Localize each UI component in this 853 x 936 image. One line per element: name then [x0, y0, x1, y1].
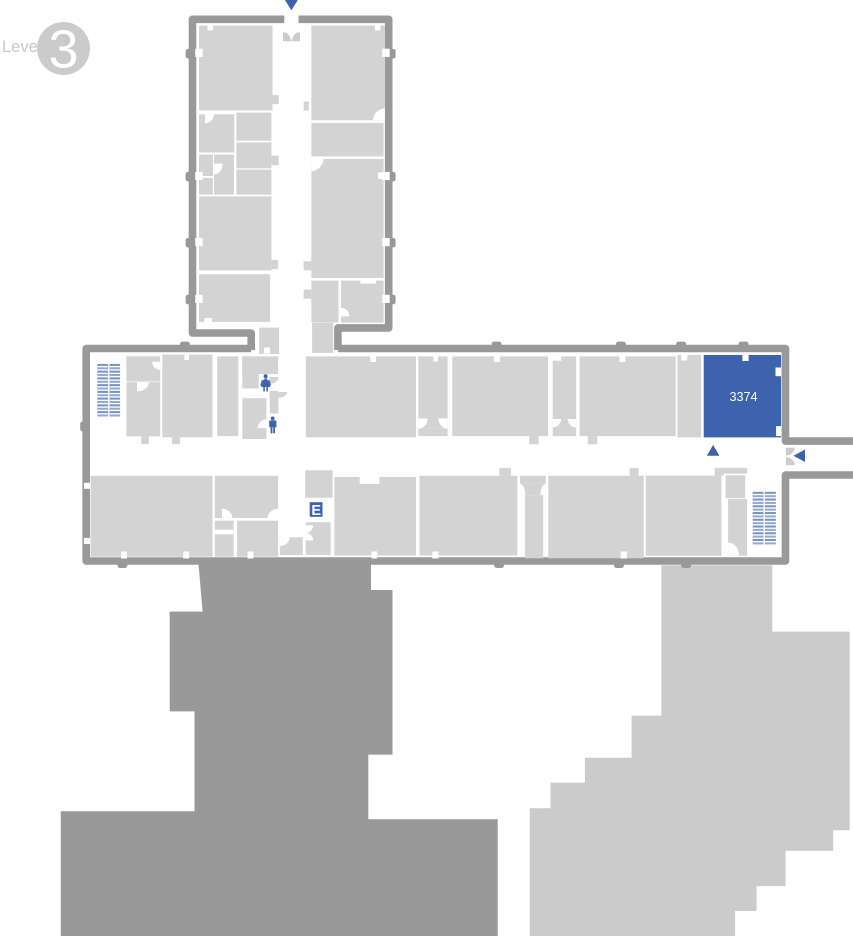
- svg-text:3: 3: [48, 20, 78, 80]
- svg-text:Level: Level: [2, 38, 41, 56]
- svg-text:E: E: [311, 503, 321, 519]
- svg-text:3374: 3374: [729, 390, 757, 404]
